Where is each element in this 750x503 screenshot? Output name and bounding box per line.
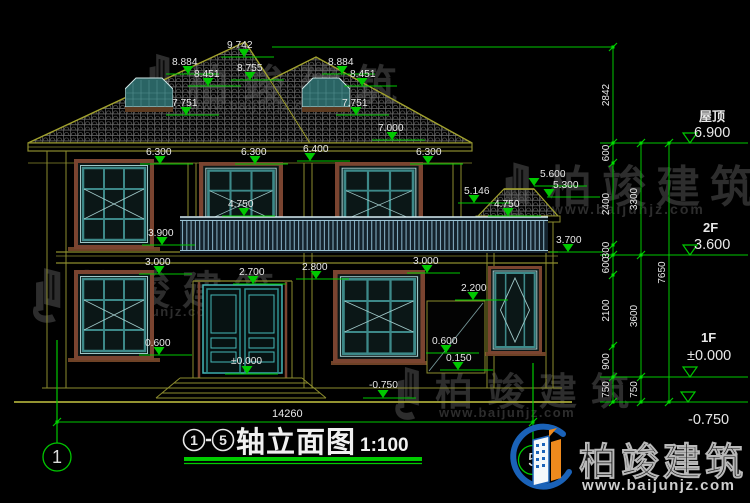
axis-marker-1: 1 [43, 443, 71, 471]
window-1f-left [76, 272, 152, 358]
dim-value: 2842 [601, 83, 612, 106]
dim-value: 7650 [657, 261, 668, 284]
level-value: 7.751 [342, 98, 368, 109]
drawing-canvas: 柏竣建筑 www.baijunjz.com 柏竣建筑 www.baijunjz.… [0, 0, 750, 503]
title-axis-from: 1 [190, 432, 198, 448]
dim-value: 600 [601, 256, 612, 273]
storey-name: 屋顶 [699, 109, 725, 124]
storey-elevation: -0.750 [688, 412, 729, 428]
level-value: 6.300 [416, 147, 442, 158]
level-value: 6.400 [303, 144, 329, 155]
storey-level-triangle-icon [681, 392, 695, 402]
dim-node-icon [668, 401, 671, 404]
window-1f-right [335, 272, 422, 361]
level-value: -0.750 [369, 380, 398, 391]
level-value: 7.000 [378, 123, 404, 134]
drawing-title: 1 5 轴立面图 1:100 [184, 425, 423, 464]
level-value: ±0.000 [231, 356, 262, 367]
logo-url-text: www.baijunjz.com [581, 477, 735, 494]
watermark-url: www.baijunjz.com [438, 405, 575, 420]
axis-number: 1 [52, 447, 62, 467]
elevation-drawing: 柏竣建筑 www.baijunjz.com 柏竣建筑 www.baijunjz.… [0, 0, 750, 503]
level-value: 8.884 [172, 57, 198, 68]
dim-value: 2100 [601, 299, 612, 322]
level-value: 5.600 [540, 169, 566, 180]
dim-value: 900 [601, 353, 612, 370]
dim-value: 2400 [601, 192, 612, 215]
storey-level-triangle-icon [683, 367, 697, 377]
level-value: 3.700 [556, 235, 582, 246]
dim-node-icon [640, 401, 643, 404]
title-scale: 1:100 [360, 435, 409, 456]
level-value: 2.700 [239, 267, 265, 278]
dim-value: 600 [601, 144, 612, 161]
dim-node-icon [640, 142, 643, 145]
total-width-value: 14260 [272, 408, 303, 420]
watermark-url: www.baijunjz.com [551, 201, 705, 217]
level-value: 8.451 [194, 69, 220, 80]
dim-value: 3600 [629, 304, 640, 327]
level-value: 7.751 [172, 98, 198, 109]
balcony-railing [180, 217, 548, 253]
dim-node-icon [640, 376, 643, 379]
storey-elevation: 6.900 [694, 125, 730, 141]
storey-elevation: 3.600 [694, 237, 730, 253]
storey-name: 1F [701, 330, 716, 345]
window-porch [490, 268, 541, 353]
level-value: 4.750 [228, 199, 254, 210]
dim-value: 750 [601, 381, 612, 398]
level-value: 0.600 [145, 338, 171, 349]
level-value: 8.755 [237, 63, 263, 74]
level-mark-triangle-icon [529, 178, 540, 186]
level-value: 6.300 [241, 147, 267, 158]
level-value: 3.900 [148, 228, 174, 239]
level-value: 3.000 [145, 257, 171, 268]
storey-elevation: ±0.000 [687, 348, 731, 364]
title-text: 轴立面图 [236, 425, 356, 459]
level-value: 8.884 [328, 57, 354, 68]
level-mark-triangle-icon [378, 390, 389, 398]
dim-value: 300 [601, 241, 612, 258]
logo-tower-orange-icon [551, 439, 561, 481]
window-2f-left [76, 161, 152, 247]
storey-name: 2F [703, 220, 718, 235]
entry-steps [156, 378, 326, 398]
dim-node-icon [612, 401, 615, 404]
railing-panel [180, 217, 548, 253]
level-value: 8.451 [350, 69, 376, 80]
dim-value: 750 [629, 381, 640, 398]
level-value: 0.600 [432, 336, 458, 347]
level-value: 2.200 [461, 283, 487, 294]
dim-value: 3300 [629, 187, 640, 210]
dim-node-icon [612, 376, 615, 379]
brand-logo: 柏竣建筑 www.baijunjz.com [513, 427, 747, 494]
level-value: 4.750 [494, 199, 520, 210]
watermark-logo-icon [395, 367, 419, 420]
level-value: 5.300 [553, 180, 579, 191]
level-value: 6.300 [146, 147, 172, 158]
level-value: 2.800 [302, 262, 328, 273]
title-underline-thick [184, 457, 422, 461]
dim-node-icon [640, 254, 643, 257]
level-value: 5.146 [464, 186, 490, 197]
dim-node-icon [668, 142, 671, 145]
title-axis-to: 5 [219, 432, 227, 448]
level-value: 9.742 [227, 40, 253, 51]
level-value: 0.150 [446, 353, 472, 364]
dormer-left [125, 78, 173, 112]
house-elevation [14, 42, 572, 402]
logo-tower-icon [533, 436, 549, 486]
dim-node-icon [612, 142, 615, 145]
level-value: 3.000 [413, 256, 439, 267]
dim-node-icon [612, 345, 615, 348]
